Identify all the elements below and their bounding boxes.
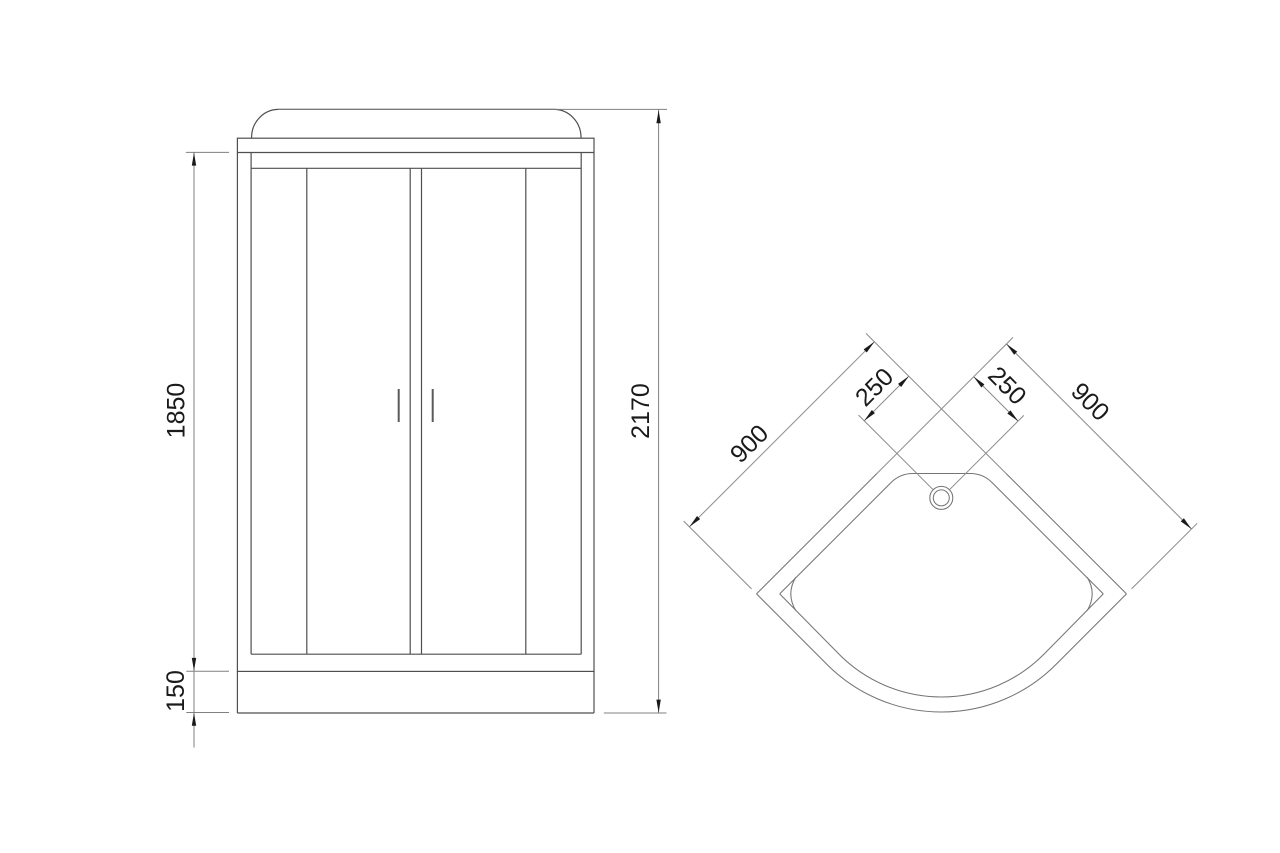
svg-text:150: 150 <box>162 670 190 712</box>
svg-text:1850: 1850 <box>163 383 191 439</box>
svg-text:250: 250 <box>982 361 1031 410</box>
svg-text:2170: 2170 <box>627 383 655 439</box>
svg-text:900: 900 <box>1065 377 1114 426</box>
svg-text:900: 900 <box>725 419 774 468</box>
svg-text:250: 250 <box>850 363 899 412</box>
